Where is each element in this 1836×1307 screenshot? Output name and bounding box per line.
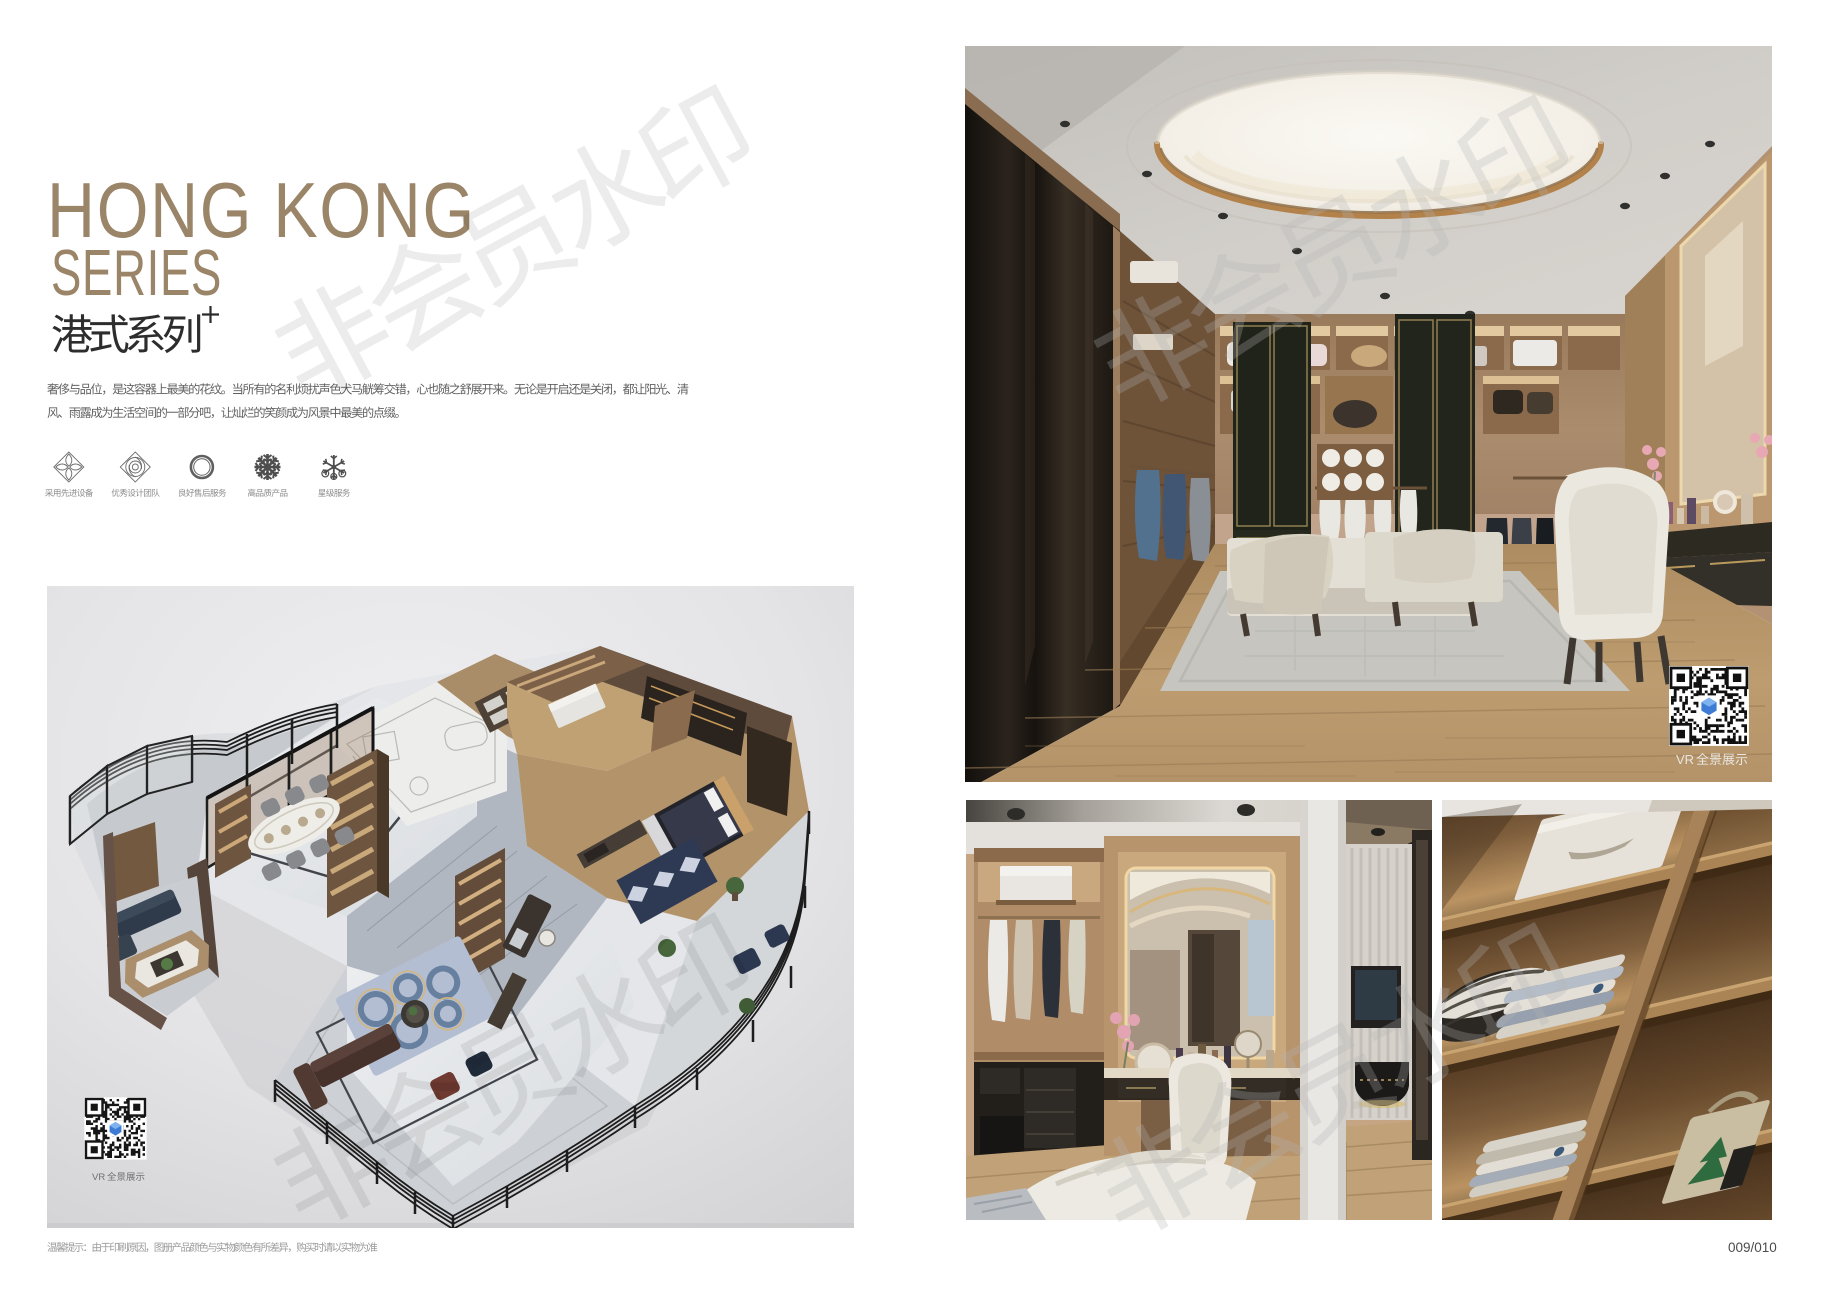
svg-text:009/010: 009/010 — [1728, 1240, 1777, 1255]
svg-text:VR: VR — [92, 1172, 105, 1183]
svg-text:VR: VR — [1676, 752, 1694, 767]
